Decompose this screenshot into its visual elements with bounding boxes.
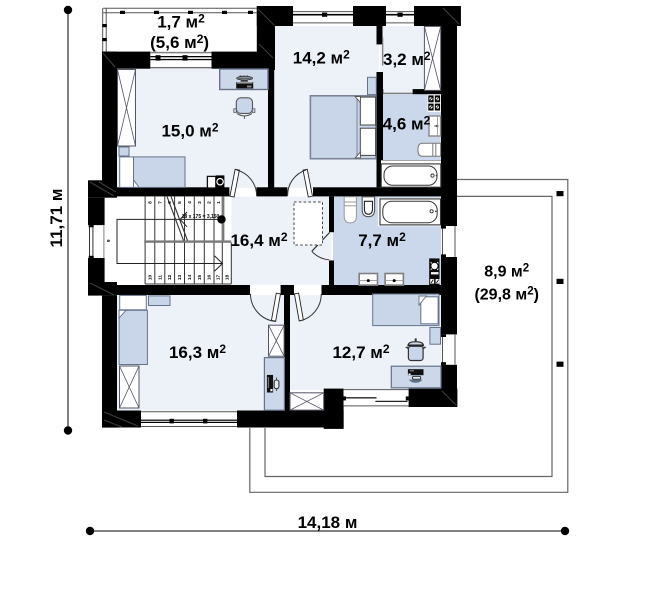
svg-text:4: 4 xyxy=(187,201,193,204)
svg-text:7,7 м2: 7,7 м2 xyxy=(358,230,406,250)
svg-text:12,7 м2: 12,7 м2 xyxy=(332,342,389,362)
svg-text:7: 7 xyxy=(157,201,163,204)
svg-text:13: 13 xyxy=(177,275,183,281)
svg-text:16: 16 xyxy=(207,275,213,281)
svg-text:5: 5 xyxy=(177,201,183,204)
svg-text:11,71 м: 11,71 м xyxy=(47,189,66,248)
svg-text:14,18 м: 14,18 м xyxy=(298,513,358,532)
svg-text:18: 18 xyxy=(224,275,230,281)
svg-text:6: 6 xyxy=(167,201,173,204)
svg-text:3,2 м2: 3,2 м2 xyxy=(383,49,431,69)
svg-text:17: 17 xyxy=(216,275,222,281)
svg-text:3: 3 xyxy=(197,201,203,204)
svg-text:8: 8 xyxy=(147,201,153,204)
svg-text:2: 2 xyxy=(207,201,213,204)
svg-text:14: 14 xyxy=(187,275,193,281)
svg-text:9: 9 xyxy=(106,239,112,242)
svg-text:1,7 м2: 1,7 м2 xyxy=(157,11,205,31)
svg-text:16,4 м2: 16,4 м2 xyxy=(230,230,287,250)
svg-text:11: 11 xyxy=(157,275,163,280)
svg-text:10: 10 xyxy=(147,275,153,281)
svg-text:12: 12 xyxy=(167,275,173,281)
svg-text:15: 15 xyxy=(197,275,203,281)
svg-text:16,3 м2: 16,3 м2 xyxy=(169,342,226,362)
svg-text:15,0 м2: 15,0 м2 xyxy=(161,120,218,140)
svg-text:1: 1 xyxy=(216,201,222,204)
svg-text:14,2 м2: 14,2 м2 xyxy=(293,48,350,68)
svg-text:8,9 м2: 8,9 м2 xyxy=(484,262,529,280)
svg-text:4,6 м2: 4,6 м2 xyxy=(383,114,431,134)
svg-text:18 x 175 = 3,150: 18 x 175 = 3,150 xyxy=(182,214,220,220)
